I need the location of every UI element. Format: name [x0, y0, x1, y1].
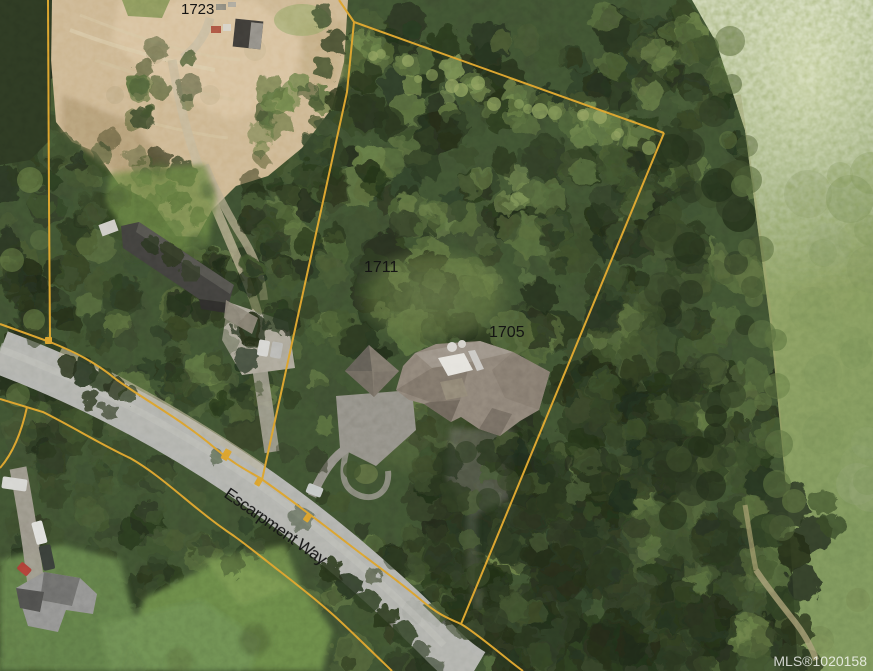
svg-text:1711: 1711: [364, 259, 399, 276]
svg-text:1723: 1723: [181, 1, 214, 18]
svg-text:1705: 1705: [489, 324, 525, 341]
svg-text:MLS®1020158: MLS®1020158: [773, 653, 867, 669]
